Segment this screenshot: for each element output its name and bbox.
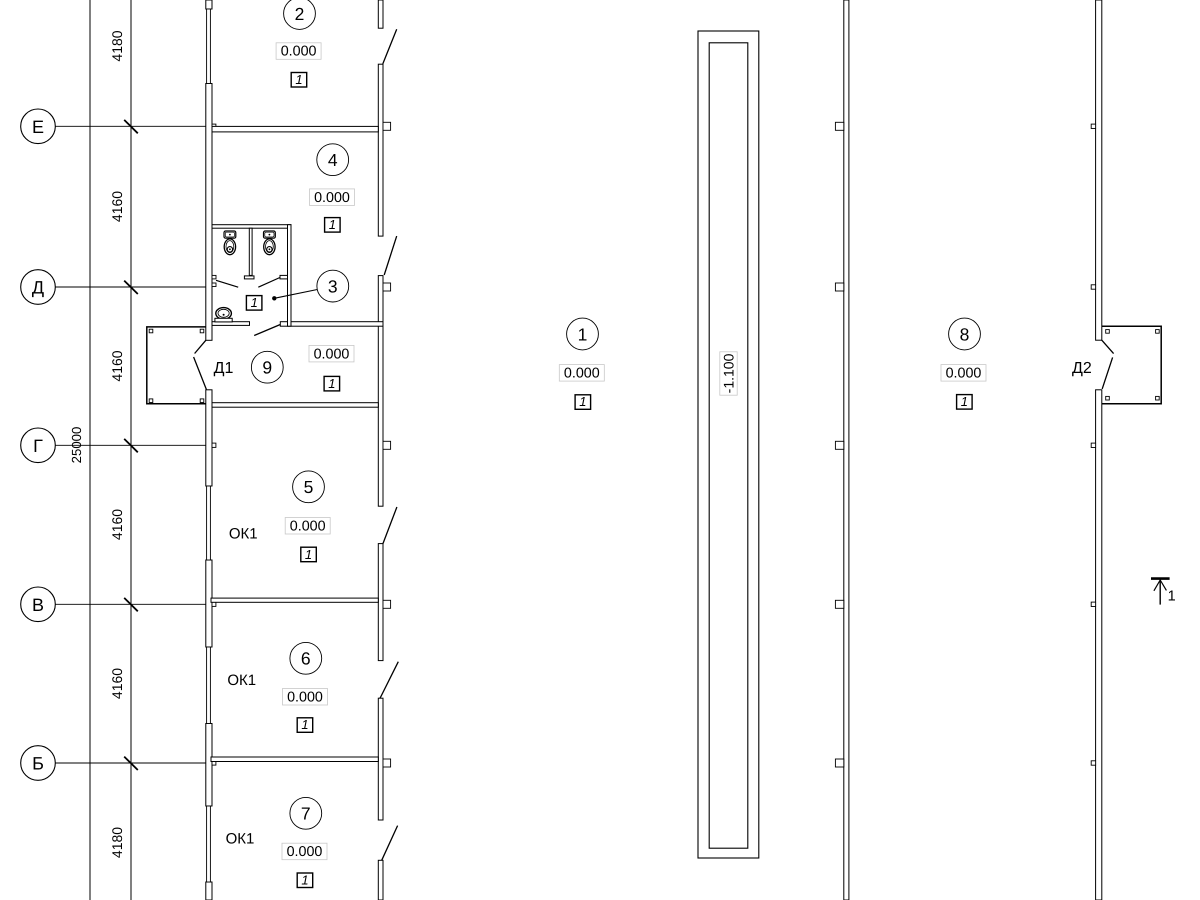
svg-text:1: 1 (578, 324, 588, 344)
svg-text:1: 1 (328, 376, 335, 391)
svg-text:4160: 4160 (109, 191, 125, 222)
svg-text:8: 8 (960, 324, 970, 344)
svg-text:3: 3 (328, 276, 338, 296)
svg-text:ОК1: ОК1 (226, 831, 255, 848)
svg-text:4160: 4160 (109, 668, 125, 699)
svg-text:0.000: 0.000 (946, 366, 982, 382)
svg-text:ОК1: ОК1 (227, 672, 256, 689)
svg-text:0.000: 0.000 (314, 346, 350, 362)
svg-text:Г: Г (33, 436, 43, 456)
svg-text:0.000: 0.000 (281, 44, 317, 60)
svg-text:9: 9 (262, 358, 272, 378)
svg-text:6: 6 (301, 649, 311, 669)
svg-text:Б: Б (32, 754, 44, 774)
svg-text:0.000: 0.000 (287, 689, 323, 705)
svg-text:1: 1 (329, 217, 336, 232)
svg-text:2: 2 (295, 4, 305, 24)
svg-text:4160: 4160 (109, 509, 125, 540)
svg-text:Д: Д (32, 278, 44, 298)
svg-text:1: 1 (961, 394, 968, 409)
svg-text:7: 7 (301, 804, 311, 824)
svg-text:1: 1 (305, 547, 312, 562)
svg-text:Е: Е (32, 117, 44, 137)
svg-text:4160: 4160 (109, 350, 125, 381)
svg-text:0.000: 0.000 (287, 844, 323, 860)
svg-text:4: 4 (328, 150, 338, 170)
svg-text:Д1: Д1 (214, 360, 234, 377)
svg-text:1: 1 (1168, 588, 1176, 604)
svg-text:1: 1 (579, 394, 586, 409)
svg-text:5: 5 (304, 477, 314, 497)
svg-text:1: 1 (301, 873, 308, 888)
svg-text:4180: 4180 (109, 30, 125, 61)
svg-text:4180: 4180 (109, 827, 125, 858)
svg-text:1: 1 (295, 72, 302, 87)
svg-text:0.000: 0.000 (290, 518, 326, 534)
svg-text:0.000: 0.000 (314, 190, 350, 206)
svg-text:ОК1: ОК1 (229, 526, 258, 543)
svg-text:Д2: Д2 (1072, 360, 1092, 377)
svg-text:В: В (32, 595, 44, 615)
svg-text:0.000: 0.000 (564, 366, 600, 382)
svg-text:1: 1 (251, 295, 258, 310)
svg-text:1: 1 (301, 717, 308, 732)
svg-text:-1.100: -1.100 (721, 353, 737, 393)
